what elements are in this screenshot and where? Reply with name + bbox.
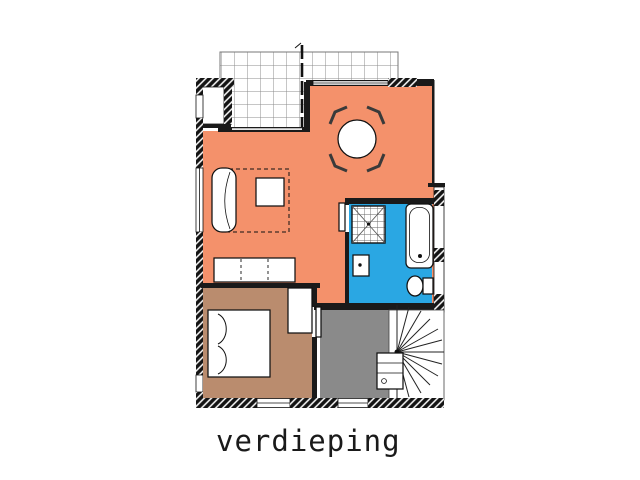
toilet-bowl bbox=[407, 276, 423, 296]
wardrobe bbox=[288, 288, 312, 333]
floor-plan-drawing bbox=[0, 0, 640, 480]
storage-closet bbox=[377, 353, 403, 389]
wall-living-right bbox=[432, 80, 435, 185]
wall-hatch-right-2 bbox=[434, 248, 444, 262]
wall-bath-top-right bbox=[428, 183, 445, 187]
coffee-table bbox=[256, 178, 284, 206]
sofa bbox=[212, 168, 236, 232]
wall-hatch-bottom-2 bbox=[290, 398, 338, 408]
wall-bathroom-top bbox=[345, 198, 434, 204]
wall-terrace-living-stub bbox=[304, 82, 310, 131]
wall-hatch-bottom-3 bbox=[368, 398, 444, 408]
bathtub-drain bbox=[418, 254, 422, 258]
joint-tick-mark bbox=[295, 43, 301, 48]
wall-hatch-right-1 bbox=[434, 190, 444, 206]
window-left-3 bbox=[196, 375, 203, 392]
bathroom bbox=[339, 198, 434, 305]
wall-bedroom-right-upper bbox=[312, 288, 317, 307]
dining-table bbox=[338, 120, 376, 158]
wall-hatch-niche-top bbox=[198, 78, 234, 87]
bathroom-door-leaf bbox=[339, 203, 345, 231]
wall-bedroom-top bbox=[201, 283, 320, 288]
bedroom-group bbox=[201, 283, 321, 400]
wall-hatch-left-1 bbox=[196, 78, 203, 95]
window-terrace-door bbox=[232, 128, 302, 130]
storage-niche bbox=[201, 87, 224, 124]
washbasin-tap bbox=[358, 263, 361, 266]
shower-drain bbox=[367, 222, 370, 225]
wall-hatch-right-3 bbox=[434, 294, 444, 310]
wall-hall-top bbox=[314, 303, 434, 310]
toilet-cistern bbox=[423, 278, 433, 294]
wall-top-right-edge bbox=[417, 79, 434, 81]
wall-hatch-left-2 bbox=[196, 118, 203, 168]
window-left-1 bbox=[196, 95, 203, 118]
floor-plan-page: verdieping bbox=[0, 0, 640, 480]
exterior-wall-left bbox=[196, 78, 203, 408]
exterior-wall-bottom bbox=[201, 398, 444, 408]
wall-bedroom-right-lower bbox=[312, 337, 317, 398]
wall-hatch-bottom-1 bbox=[201, 398, 257, 408]
bedroom-door-leaf bbox=[316, 307, 321, 337]
double-bed bbox=[208, 310, 270, 377]
sideboard bbox=[214, 258, 295, 282]
wall-hatch-top-right bbox=[388, 78, 417, 87]
floor-label: verdieping bbox=[216, 424, 401, 458]
wall-hatch-left-3 bbox=[196, 232, 203, 375]
wall-hatch-niche-right bbox=[224, 87, 232, 125]
